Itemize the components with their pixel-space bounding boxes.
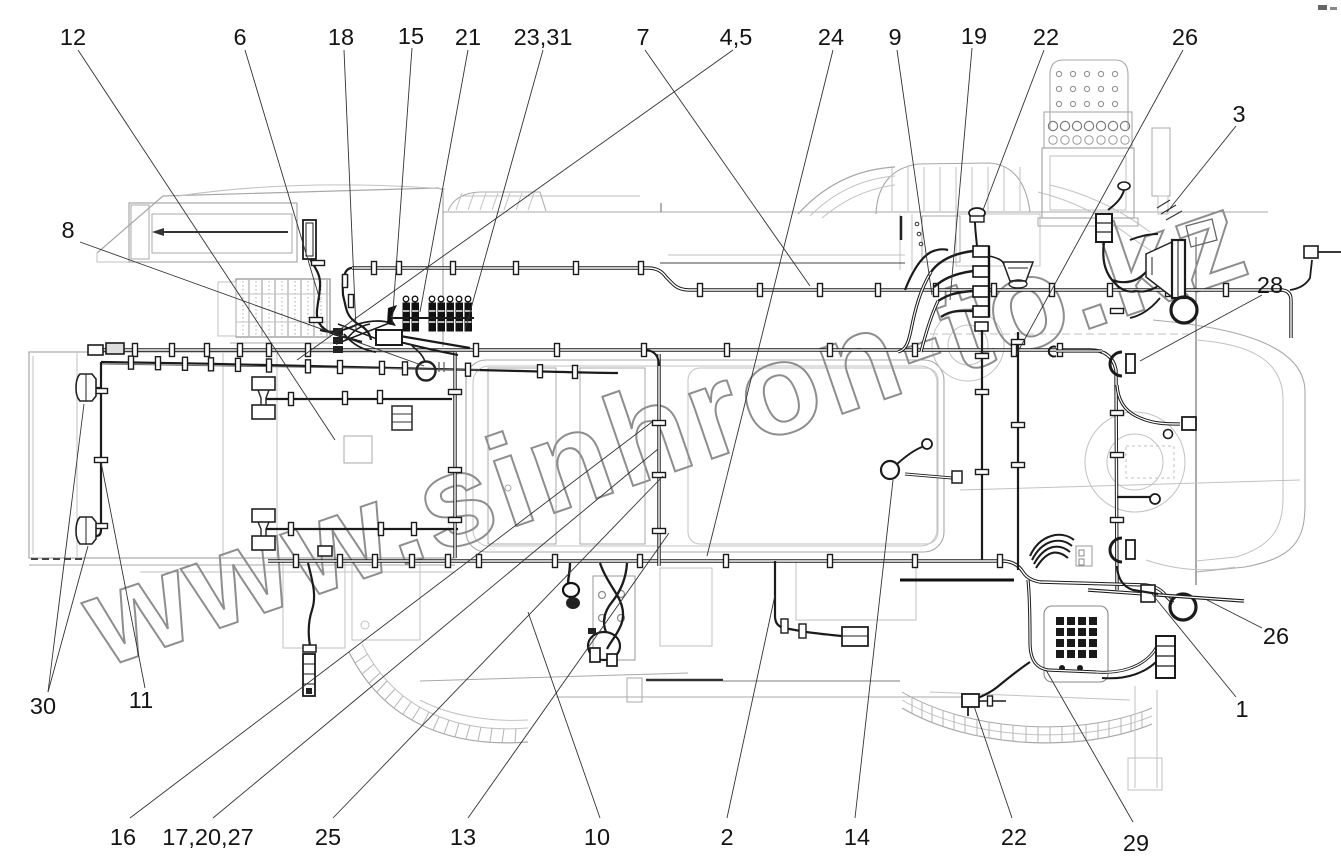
svg-text:17,20,27: 17,20,27 [162, 824, 253, 850]
svg-text:7: 7 [636, 24, 649, 50]
svg-text:29: 29 [1123, 830, 1149, 856]
svg-text:16: 16 [110, 824, 136, 850]
svg-text:23,31: 23,31 [514, 24, 573, 50]
svg-text:14: 14 [844, 824, 870, 850]
svg-text:11: 11 [129, 687, 153, 713]
svg-text:24: 24 [818, 24, 844, 50]
svg-text:2: 2 [720, 824, 733, 850]
svg-text:28: 28 [1257, 272, 1283, 298]
svg-text:8: 8 [61, 217, 74, 243]
svg-text:3: 3 [1232, 101, 1245, 127]
svg-text:12: 12 [60, 24, 86, 50]
svg-text:26: 26 [1172, 24, 1198, 50]
svg-text:10: 10 [584, 824, 610, 850]
svg-text:18: 18 [328, 24, 354, 50]
svg-text:9: 9 [888, 24, 901, 50]
svg-text:25: 25 [315, 824, 341, 850]
svg-text:22: 22 [1001, 824, 1027, 850]
svg-text:13: 13 [450, 824, 476, 850]
svg-text:6: 6 [233, 24, 246, 50]
svg-text:19: 19 [961, 23, 987, 49]
svg-text:21: 21 [455, 24, 481, 50]
svg-text:22: 22 [1033, 24, 1059, 50]
svg-text:4,5: 4,5 [720, 24, 753, 50]
svg-text:1: 1 [1235, 696, 1248, 722]
svg-text:30: 30 [30, 693, 56, 719]
svg-text:15: 15 [398, 23, 424, 49]
svg-text:26: 26 [1263, 623, 1289, 649]
